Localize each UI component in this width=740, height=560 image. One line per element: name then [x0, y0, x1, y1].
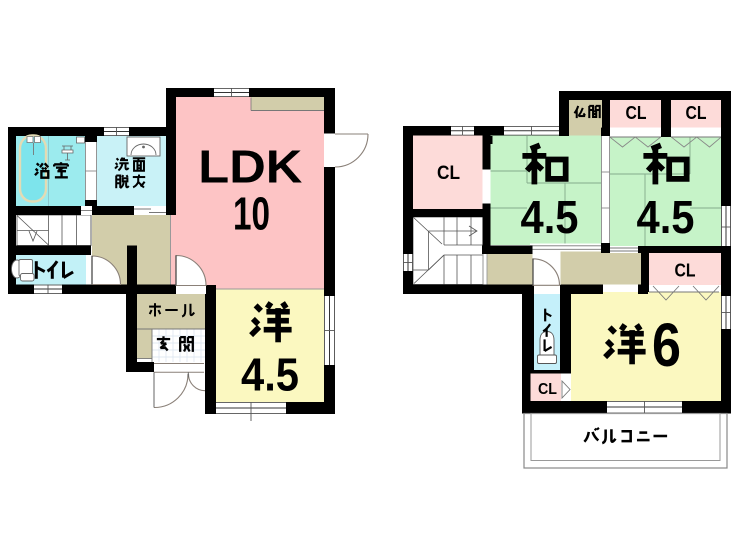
- svg-text:CL: CL: [538, 381, 557, 398]
- svg-text:LDK: LDK: [198, 141, 302, 193]
- svg-text:4.5: 4.5: [241, 349, 299, 401]
- svg-text:CL: CL: [437, 162, 460, 184]
- svg-text:CL: CL: [686, 103, 707, 123]
- svg-text:10: 10: [233, 188, 270, 240]
- svg-text:CL: CL: [675, 261, 696, 281]
- svg-text:6: 6: [652, 311, 681, 379]
- svg-text:4.5: 4.5: [637, 191, 695, 243]
- svg-text:4.5: 4.5: [521, 191, 579, 243]
- svg-text:CL: CL: [626, 103, 647, 123]
